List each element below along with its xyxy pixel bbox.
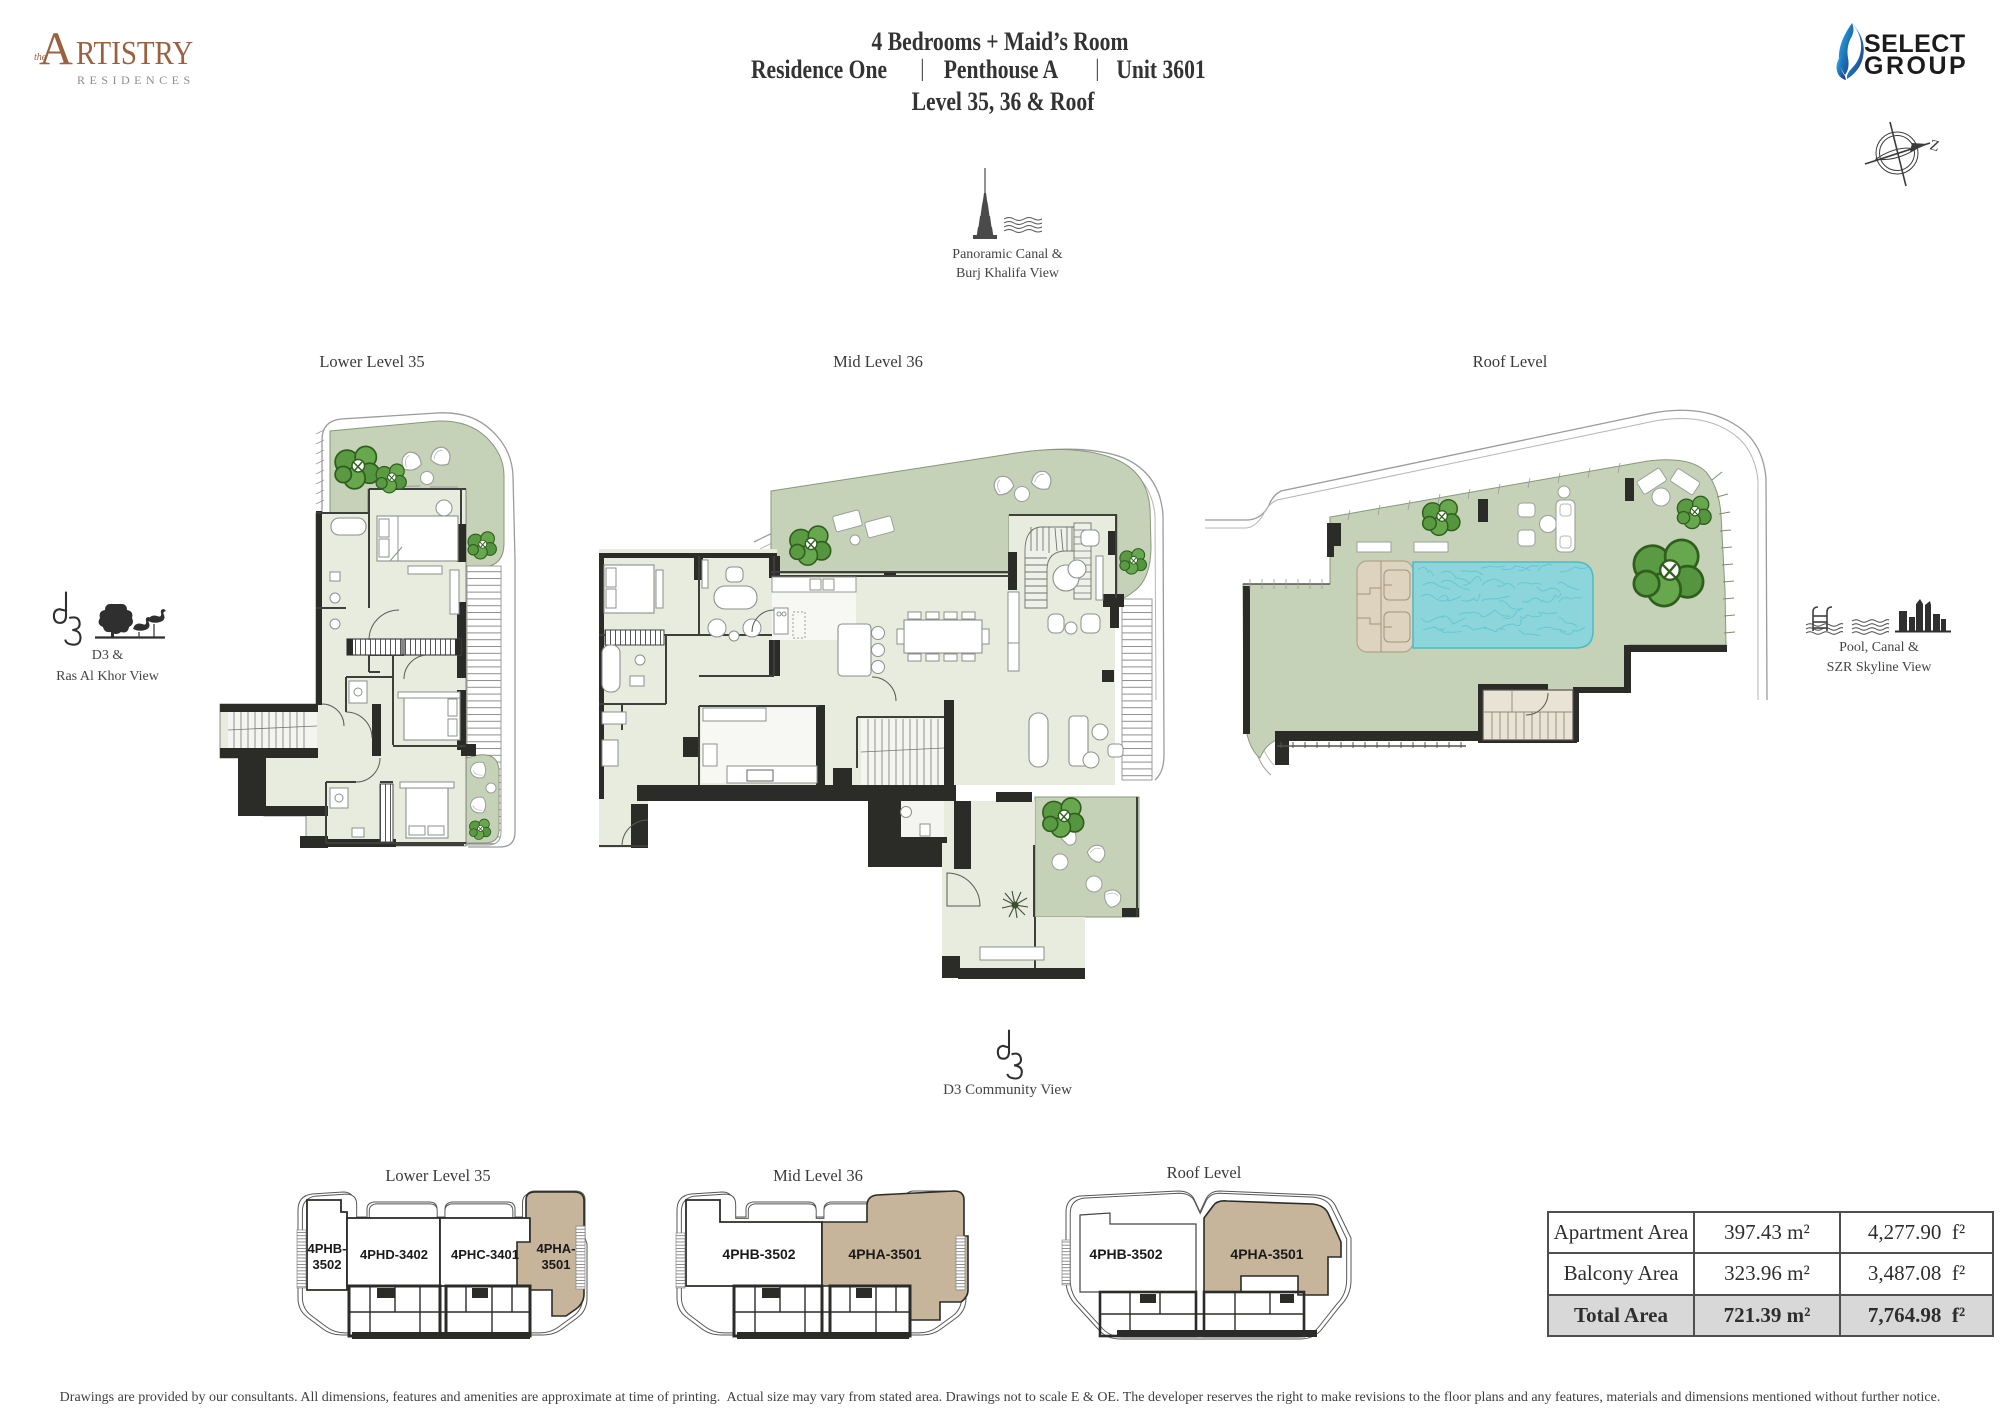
svg-text:4PHC-3401: 4PHC-3401 (451, 1247, 519, 1262)
svg-text:4PHB-3502: 4PHB-3502 (1089, 1246, 1162, 1262)
svg-text:Z: Z (1928, 137, 1941, 155)
svg-text:3502: 3502 (313, 1257, 342, 1272)
svg-text:4PHA-: 4PHA- (536, 1241, 575, 1256)
svg-text:4PHA-3501: 4PHA-3501 (848, 1246, 921, 1262)
svg-text:GROUP: GROUP (1864, 52, 1968, 80)
svg-text:4PHB-3502: 4PHB-3502 (722, 1246, 795, 1262)
svg-text:4PHD-3402: 4PHD-3402 (360, 1247, 428, 1262)
svg-text:4PHB-: 4PHB- (307, 1241, 346, 1256)
svg-text:3501: 3501 (542, 1257, 571, 1272)
svg-text:4PHA-3501: 4PHA-3501 (1230, 1246, 1303, 1262)
